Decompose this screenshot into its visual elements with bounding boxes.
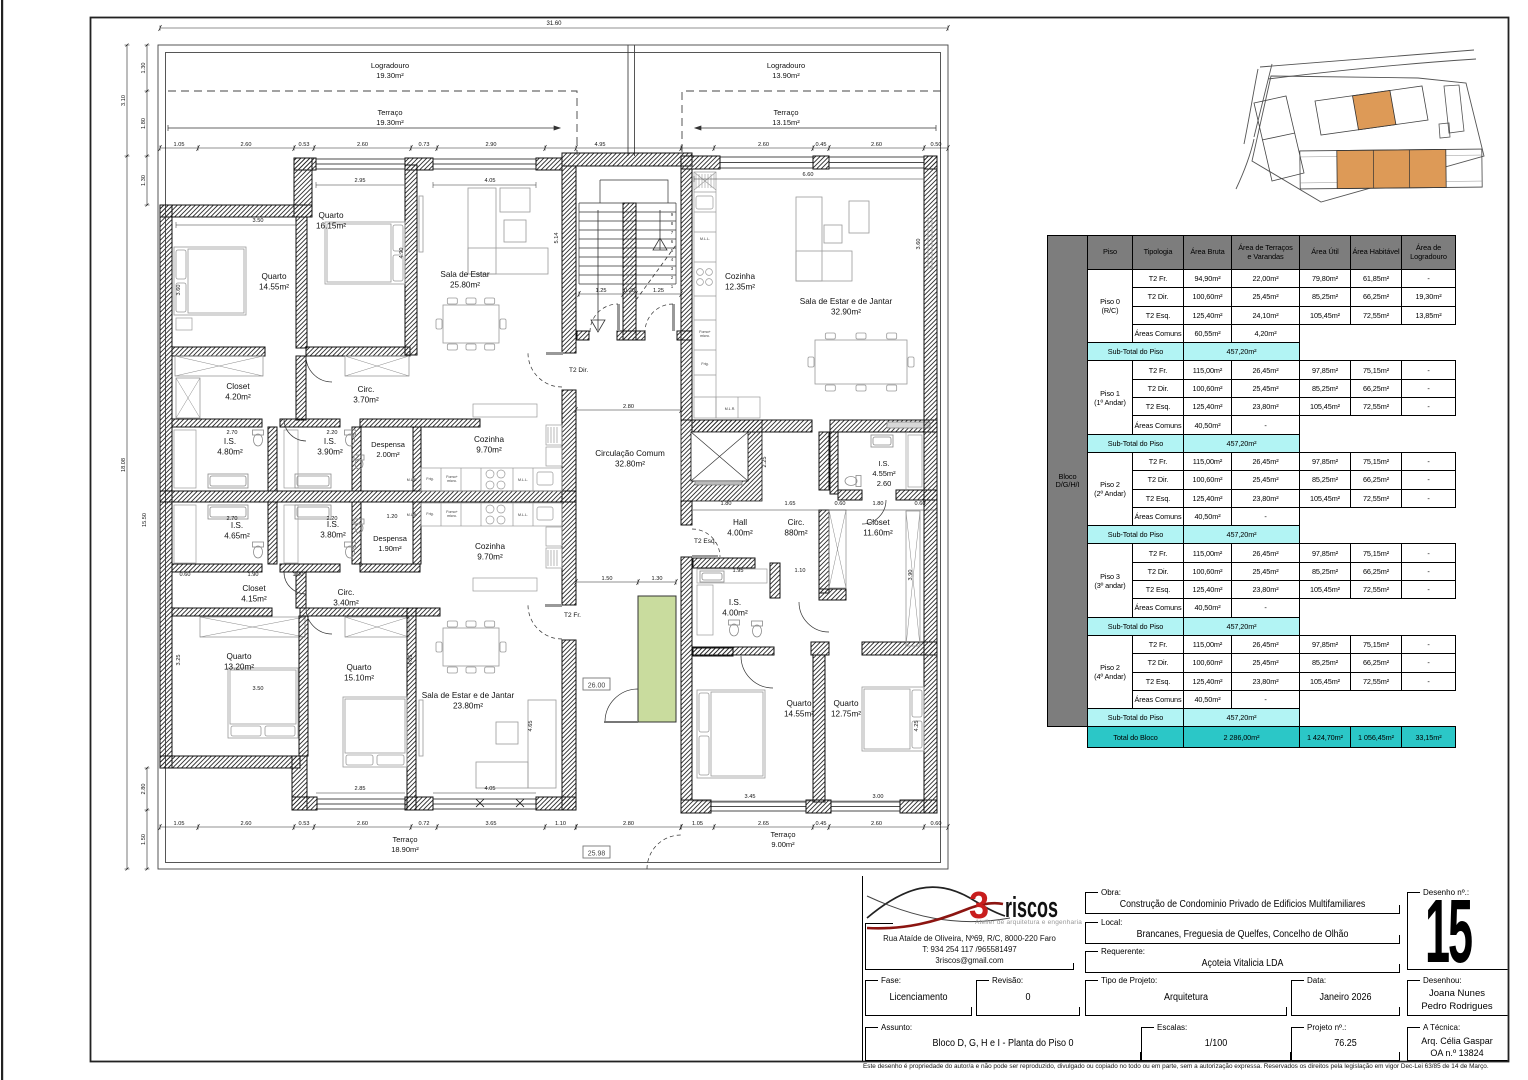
svg-text:2: 2 [671,275,674,280]
svg-text:19.30m²: 19.30m² [376,118,404,127]
svg-text:Closet: Closet [242,584,266,593]
svg-text:M.L.L.: M.L.L. [700,237,710,241]
svg-text:1.50: 1.50 [602,576,613,582]
svg-text:1.25: 1.25 [653,288,664,294]
svg-text:I.S.: I.S. [878,459,889,468]
svg-text:4.05: 4.05 [485,786,496,792]
svg-text:1.30: 1.30 [141,63,147,74]
svg-text:3.70m²: 3.70m² [353,396,379,405]
svg-text:Quarto: Quarto [786,699,811,708]
svg-text:1.65: 1.65 [785,501,796,507]
svg-text:Closet: Closet [226,382,250,391]
svg-text:13.20m²: 13.20m² [224,663,254,672]
svg-text:2.85: 2.85 [355,786,366,792]
svg-text:2.90: 2.90 [486,142,497,148]
svg-text:0.72: 0.72 [419,821,430,827]
svg-text:3.60: 3.60 [176,285,182,296]
svg-text:2.60: 2.60 [758,142,769,148]
svg-text:18.08: 18.08 [121,458,127,472]
svg-text:2.95: 2.95 [355,178,366,184]
svg-text:3.80m²: 3.80m² [320,531,346,540]
svg-text:Circ.: Circ. [358,385,375,394]
svg-text:2.80: 2.80 [623,404,634,410]
svg-text:9.00m²: 9.00m² [771,840,795,849]
svg-text:0.60: 0.60 [931,821,942,827]
svg-text:I.S.: I.S. [224,437,236,446]
svg-text:micro.: micro. [700,334,710,338]
svg-text:M.L.R.: M.L.R. [725,407,736,411]
svg-text:Circulação Comum: Circulação Comum [595,449,665,458]
svg-text:Terraço: Terraço [377,108,402,117]
svg-text:11.60m²: 11.60m² [863,529,893,538]
svg-text:3.40m²: 3.40m² [333,599,359,608]
svg-text:2.60: 2.60 [871,821,882,827]
svg-text:Quarto: Quarto [318,211,343,220]
svg-text:1.00: 1.00 [293,572,304,578]
svg-text:0.53: 0.53 [299,142,310,148]
svg-text:880m²: 880m² [784,529,807,538]
svg-text:I.S.: I.S. [729,598,741,607]
svg-text:Quarto: Quarto [346,663,371,672]
svg-text:1.30: 1.30 [652,576,663,582]
svg-text:Quarto: Quarto [833,699,858,708]
svg-text:1: 1 [671,284,674,289]
svg-text:2.60: 2.60 [241,821,252,827]
svg-text:I.S.: I.S. [324,437,336,446]
svg-text:1.10: 1.10 [795,568,806,574]
svg-text:1.05: 1.05 [692,821,703,827]
svg-text:13.15m²: 13.15m² [772,118,800,127]
svg-text:19.30m²: 19.30m² [376,71,404,80]
svg-text:2.80: 2.80 [623,821,634,827]
svg-text:6.60: 6.60 [803,172,814,178]
svg-text:12.35m²: 12.35m² [725,283,755,292]
svg-text:4.65: 4.65 [528,721,534,732]
svg-text:Closet: Closet [866,518,890,527]
svg-text:2.00m²: 2.00m² [376,450,400,459]
svg-text:Frig.: Frig. [701,362,708,366]
svg-text:18.08: 18.08 [0,0,2,7]
svg-text:3.90m²: 3.90m² [317,448,343,457]
svg-text:Despensa: Despensa [371,440,406,449]
svg-text:5.14: 5.14 [554,233,560,244]
svg-text:Frig.: Frig. [426,512,433,516]
svg-text:2.60: 2.60 [357,821,368,827]
svg-text:Sala de Estar e de Jantar: Sala de Estar e de Jantar [800,297,893,306]
svg-text:16.15m²: 16.15m² [316,222,346,231]
svg-text:32.80m²: 32.80m² [615,460,645,469]
svg-text:9.70m²: 9.70m² [477,553,503,562]
svg-text:23.80m²: 23.80m² [453,702,483,711]
svg-text:1.25: 1.25 [596,288,607,294]
svg-text:Cozinha: Cozinha [725,272,755,281]
svg-text:1.10: 1.10 [555,821,566,827]
svg-text:3.25: 3.25 [176,655,182,666]
svg-text:3.50: 3.50 [253,686,264,692]
svg-text:T2 Fr.: T2 Fr. [564,612,581,619]
svg-text:3: 3 [671,266,674,271]
svg-text:M.L.L.: M.L.L. [518,478,528,482]
svg-text:2.60: 2.60 [877,479,892,488]
svg-text:0.45: 0.45 [816,821,827,827]
svg-text:4.65m²: 4.65m² [224,532,250,541]
svg-text:2.70: 2.70 [227,516,238,522]
svg-text:9.70m²: 9.70m² [476,446,502,455]
svg-text:4.80m²: 4.80m² [217,448,243,457]
svg-text:Logradouro: Logradouro [767,61,805,70]
svg-text:2.60: 2.60 [241,142,252,148]
svg-text:0.45: 0.45 [816,142,827,148]
svg-text:15.10m²: 15.10m² [344,674,374,683]
svg-text:Despensa: Despensa [373,534,408,543]
svg-text:0.73: 0.73 [419,142,430,148]
svg-text:Frig.: Frig. [426,477,433,481]
svg-text:3.45: 3.45 [745,794,756,800]
svg-text:7: 7 [671,230,674,235]
svg-text:6: 6 [671,239,674,244]
svg-text:4.15m²: 4.15m² [241,595,267,604]
svg-text:1.50: 1.50 [141,834,147,845]
svg-text:0.60: 0.60 [915,501,926,507]
svg-text:Quarto: Quarto [226,652,251,661]
svg-text:Circ.: Circ. [338,588,355,597]
svg-text:Cozinha: Cozinha [475,542,505,551]
svg-text:Cozinha: Cozinha [474,435,504,444]
svg-text:4.20m²: 4.20m² [225,393,251,402]
svg-text:13.90m²: 13.90m² [772,71,800,80]
svg-text:15.50: 15.50 [142,513,148,527]
svg-text:8: 8 [671,221,674,226]
svg-text:Terraço: Terraço [773,108,798,117]
svg-text:2.25: 2.25 [762,457,768,468]
svg-text:Terraço: Terraço [392,835,417,844]
svg-text:0.53: 0.53 [299,821,310,827]
svg-text:18.90m²: 18.90m² [391,845,419,854]
svg-text:Hall: Hall [733,518,747,527]
svg-text:25.80m²: 25.80m² [450,281,480,290]
svg-text:4: 4 [671,257,674,262]
svg-text:14.55m²: 14.55m² [259,283,289,292]
svg-text:4.25: 4.25 [914,721,920,732]
svg-text:1.95: 1.95 [733,568,744,574]
svg-text:Logradouro: Logradouro [371,61,409,70]
svg-text:1.90: 1.90 [248,572,259,578]
svg-text:12.75m²: 12.75m² [831,710,861,719]
svg-text:M.L.R.: M.L.R. [407,478,418,482]
svg-text:T2 Esq.: T2 Esq. [694,538,717,545]
svg-text:3.65: 3.65 [486,821,497,827]
svg-text:1.90m²: 1.90m² [378,544,402,553]
svg-text:M.L.L.: M.L.L. [518,513,528,517]
svg-text:4.90: 4.90 [399,248,405,259]
svg-text:4.05: 4.05 [485,178,496,184]
svg-text:9: 9 [671,212,674,217]
svg-text:2.60: 2.60 [871,142,882,148]
svg-text:4.00m²: 4.00m² [727,529,753,538]
svg-text:3.10: 3.10 [121,95,127,106]
svg-text:25.98: 25.98 [588,851,606,858]
svg-text:0.60: 0.60 [835,501,846,507]
svg-text:Terraço: Terraço [770,830,795,839]
svg-text:2.20: 2.20 [327,516,338,522]
svg-text:4.95: 4.95 [595,142,606,148]
svg-text:2.80: 2.80 [141,784,147,795]
svg-text:1.05: 1.05 [174,821,185,827]
svg-text:Sala de Estar: Sala de Estar [440,270,489,279]
svg-text:2.65: 2.65 [758,821,769,827]
svg-text:2.60: 2.60 [357,142,368,148]
svg-text:I.S.: I.S. [231,521,243,530]
svg-text:3.00: 3.00 [873,794,884,800]
svg-text:M.L.R.: M.L.R. [407,513,418,517]
svg-text:3.50: 3.50 [253,218,264,224]
svg-text:0.60: 0.60 [180,572,191,578]
svg-text:1.80: 1.80 [141,118,147,129]
svg-text:14.55m²: 14.55m² [784,710,814,719]
svg-text:4.55m²: 4.55m² [872,469,896,478]
svg-text:4.00m²: 4.00m² [722,609,748,618]
svg-text:0.20: 0.20 [624,288,635,294]
svg-text:T2 Dir.: T2 Dir. [569,367,588,374]
svg-text:31.60: 31.60 [546,21,562,27]
svg-text:1.80: 1.80 [873,501,884,507]
svg-text:1.20: 1.20 [387,514,398,520]
svg-text:32.90m²: 32.90m² [831,308,861,317]
svg-text:26.00: 26.00 [588,683,606,690]
svg-text:micro.: micro. [447,514,457,518]
svg-text:3.60: 3.60 [916,239,922,250]
svg-text:1.80: 1.80 [721,501,732,507]
svg-text:Circ.: Circ. [788,518,805,527]
svg-text:micro.: micro. [447,479,457,483]
svg-text:4.55: 4.55 [408,655,414,666]
svg-text:0.50: 0.50 [931,142,942,148]
svg-text:Quarto: Quarto [261,272,286,281]
svg-text:1.05: 1.05 [174,142,185,148]
svg-text:2.20: 2.20 [327,430,338,436]
svg-text:3.90: 3.90 [908,570,914,581]
svg-text:2.70: 2.70 [227,430,238,436]
svg-text:1.30: 1.30 [141,175,147,186]
svg-text:Sala de Estar e de Jantar: Sala de Estar e de Jantar [422,691,515,700]
